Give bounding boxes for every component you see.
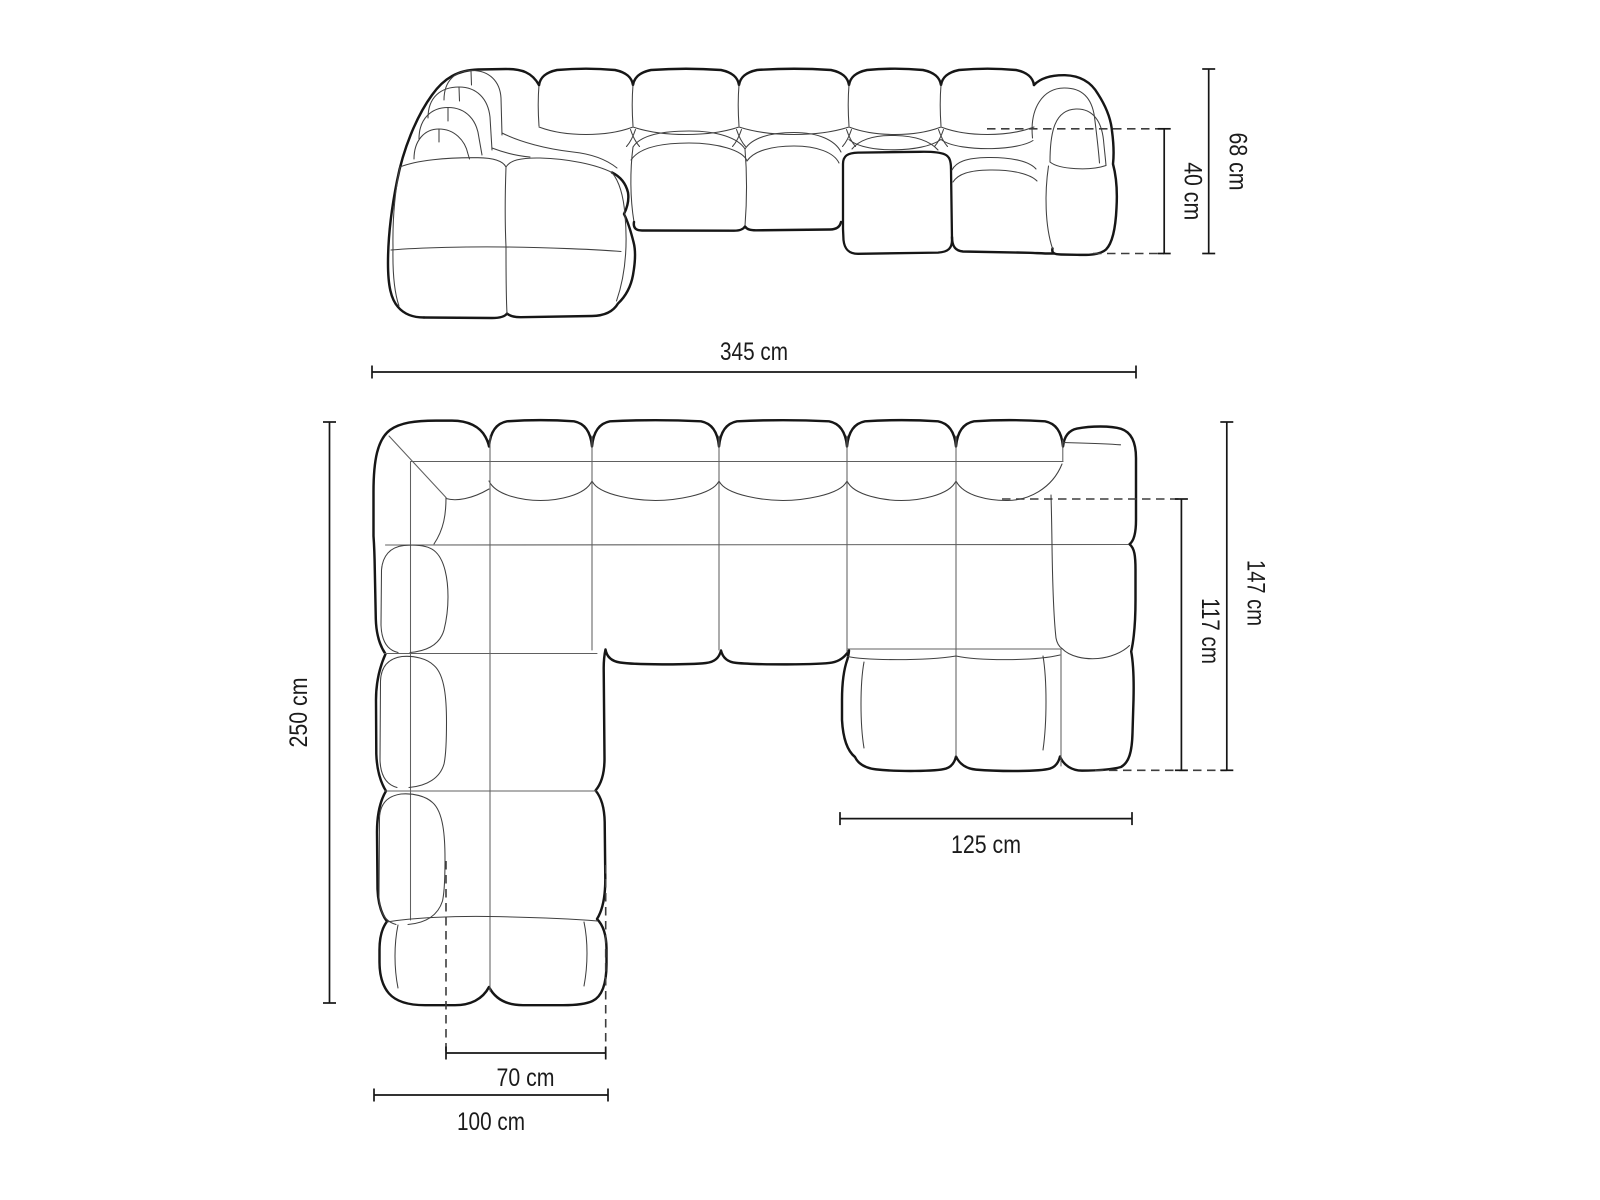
svg-text:345 cm: 345 cm [720,338,788,366]
svg-text:68 cm: 68 cm [1224,133,1252,191]
svg-text:40 cm: 40 cm [1179,162,1207,220]
svg-text:117 cm: 117 cm [1196,598,1224,664]
svg-text:147 cm: 147 cm [1242,560,1270,626]
svg-text:125 cm: 125 cm [951,831,1021,859]
svg-text:100 cm: 100 cm [457,1108,525,1136]
svg-text:250 cm: 250 cm [285,678,313,748]
svg-text:70 cm: 70 cm [497,1064,555,1092]
